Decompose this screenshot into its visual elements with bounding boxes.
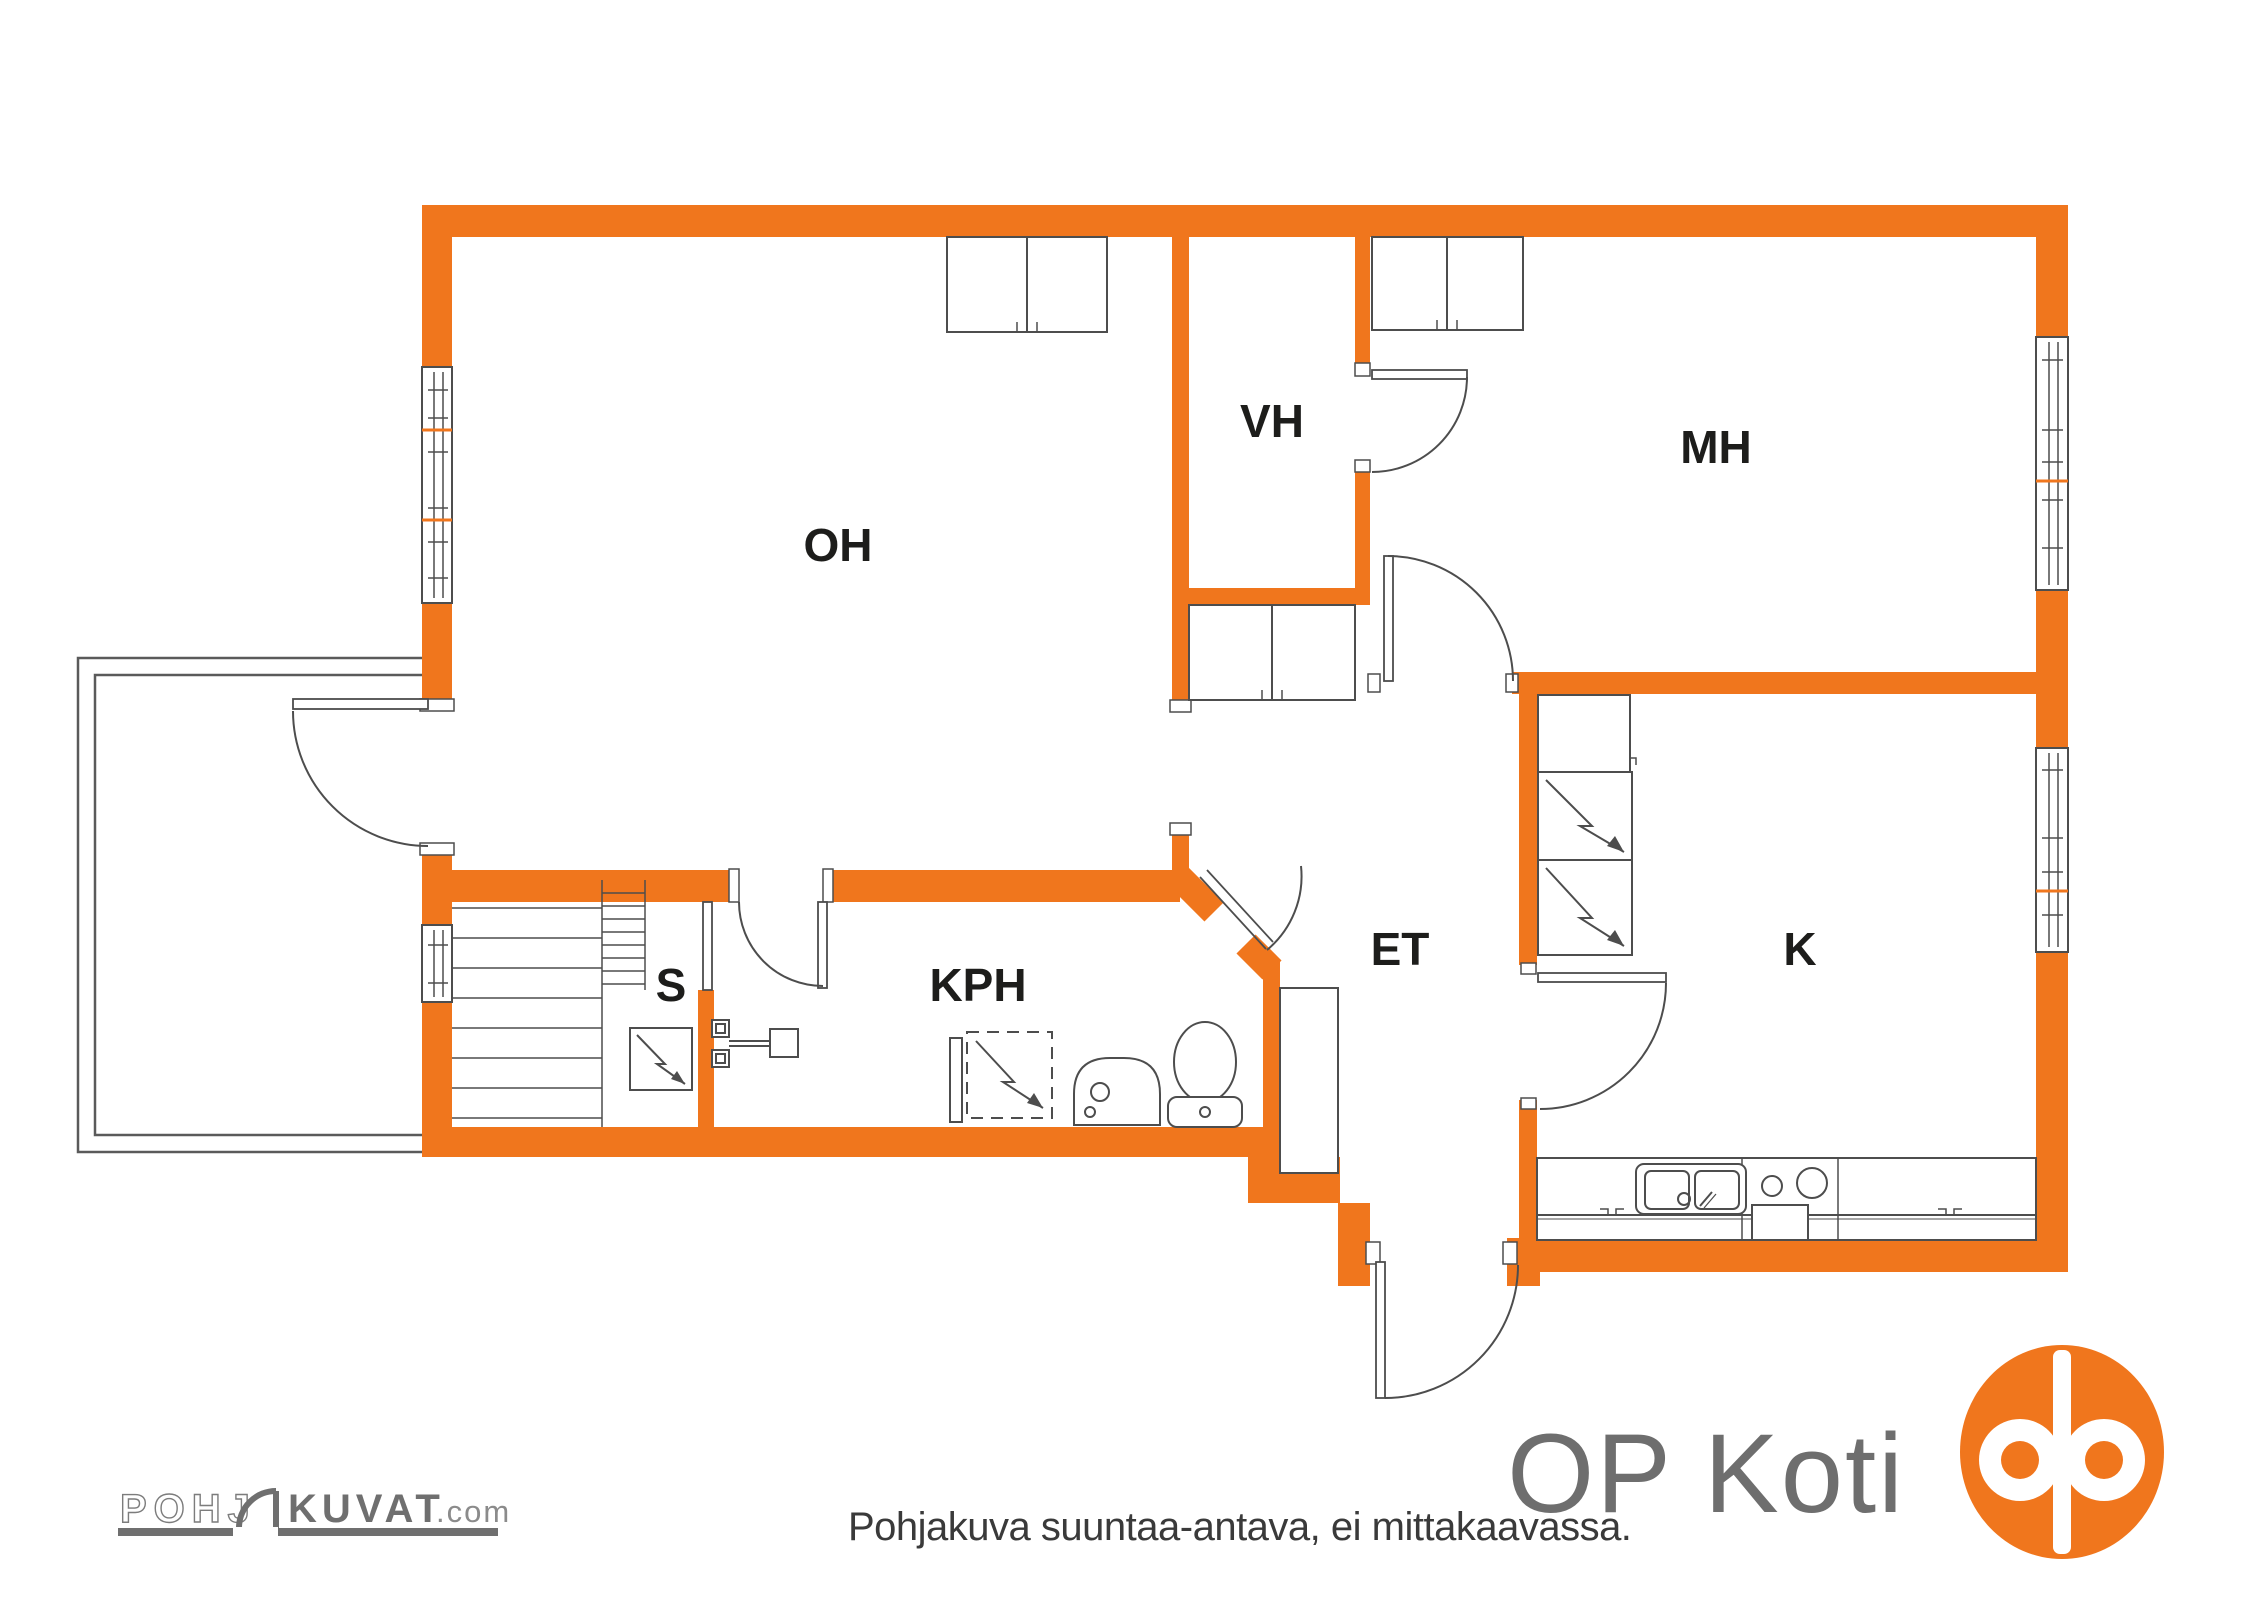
- wall-oh-s: [422, 870, 739, 902]
- wall-bottom-k: [1507, 1240, 2068, 1272]
- wall-oh-kph: [823, 870, 1180, 902]
- room-label-et: ET: [1371, 923, 1430, 975]
- kitchen-sink-icon: [1636, 1164, 1746, 1214]
- wall-left-1: [422, 205, 452, 367]
- floor-plan-page: OH VH MH ET K KPH S POHJ KUVAT .com Pohj…: [0, 0, 2262, 1600]
- pohjakuvat-suffix: .com: [436, 1494, 511, 1529]
- floor-plan: OH VH MH ET K KPH S POHJ KUVAT .com Pohj…: [0, 0, 2262, 1600]
- pohjakuvat-logo: POHJ KUVAT .com: [118, 1487, 511, 1537]
- room-label-k: K: [1783, 923, 1816, 975]
- wall-right-1: [2036, 237, 2068, 337]
- background: [0, 0, 2262, 1600]
- door-s-kph: [703, 902, 712, 990]
- wall-top: [422, 205, 2068, 237]
- wall-vh-bottom: [1172, 588, 1370, 605]
- cabinet-et: [1280, 988, 1338, 1173]
- wall-k-left-2: [1519, 1100, 1537, 1240]
- window-mh: [2036, 337, 2068, 590]
- cabinet-k: [1538, 695, 1636, 772]
- fridge-icon: [1538, 772, 1632, 860]
- window-s: [422, 925, 452, 1002]
- window-k: [2036, 748, 2068, 952]
- room-label-mh: MH: [1680, 421, 1752, 473]
- wall-bottom-skph: [422, 1127, 1280, 1157]
- room-label-s: S: [656, 959, 687, 1011]
- wall-et-kph: [1263, 960, 1280, 1127]
- kitchen-counter: [1537, 1158, 2036, 1240]
- wall-right-3: [2036, 952, 2068, 1272]
- closet-vh: [1189, 605, 1355, 700]
- window-oh: [422, 367, 452, 603]
- wall-vh-right-1: [1355, 237, 1370, 365]
- wall-right-2: [2036, 590, 2068, 748]
- room-label-kph: KPH: [929, 959, 1026, 1011]
- wall-mh-k: [1512, 672, 2068, 694]
- freezer-icon: [1538, 860, 1632, 955]
- sauna-stove-icon: [630, 1028, 692, 1090]
- pohjakuvat-underline-gap: [233, 1527, 278, 1537]
- pohjakuvat-underline: [118, 1528, 498, 1536]
- wall-k-left-1: [1519, 694, 1537, 965]
- wall-vh-left: [1172, 237, 1189, 700]
- wall-entry-post-left: [1338, 1203, 1370, 1286]
- sink-icon: [1074, 1058, 1160, 1125]
- pohjakuvat-part2: KUVAT: [288, 1487, 445, 1531]
- closet-mh-top: [1372, 237, 1523, 330]
- op-koti-label: OP Koti: [1507, 1411, 1905, 1536]
- wall-left-2: [422, 603, 452, 711]
- closet-oh-top: [947, 237, 1107, 332]
- room-label-vh: VH: [1240, 395, 1304, 447]
- op-logo-badge: [1960, 1345, 2164, 1559]
- room-label-oh: OH: [804, 519, 873, 571]
- wall-vh-right-2: [1355, 472, 1370, 605]
